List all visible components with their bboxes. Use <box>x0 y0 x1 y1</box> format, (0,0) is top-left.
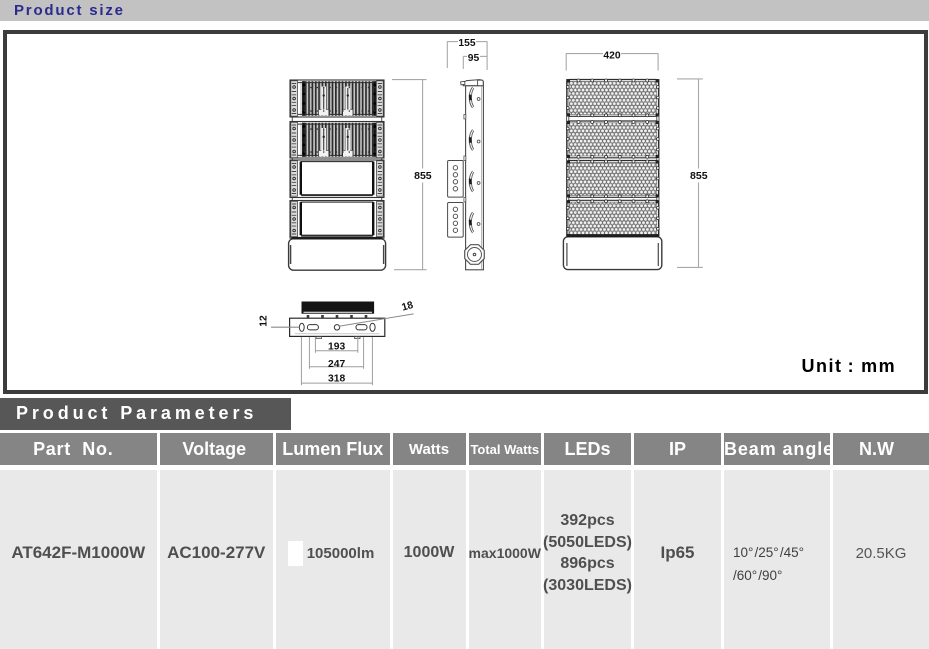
svg-text:318: 318 <box>328 374 345 385</box>
svg-text:855: 855 <box>414 170 432 182</box>
svg-text:193: 193 <box>328 342 345 353</box>
svg-text:420: 420 <box>603 50 620 61</box>
svg-text:18: 18 <box>401 300 415 314</box>
svg-text:855: 855 <box>690 170 708 182</box>
svg-text:95: 95 <box>468 53 480 64</box>
svg-text:12: 12 <box>259 315 270 327</box>
svg-text:155: 155 <box>458 38 475 49</box>
svg-text:247: 247 <box>328 359 345 370</box>
